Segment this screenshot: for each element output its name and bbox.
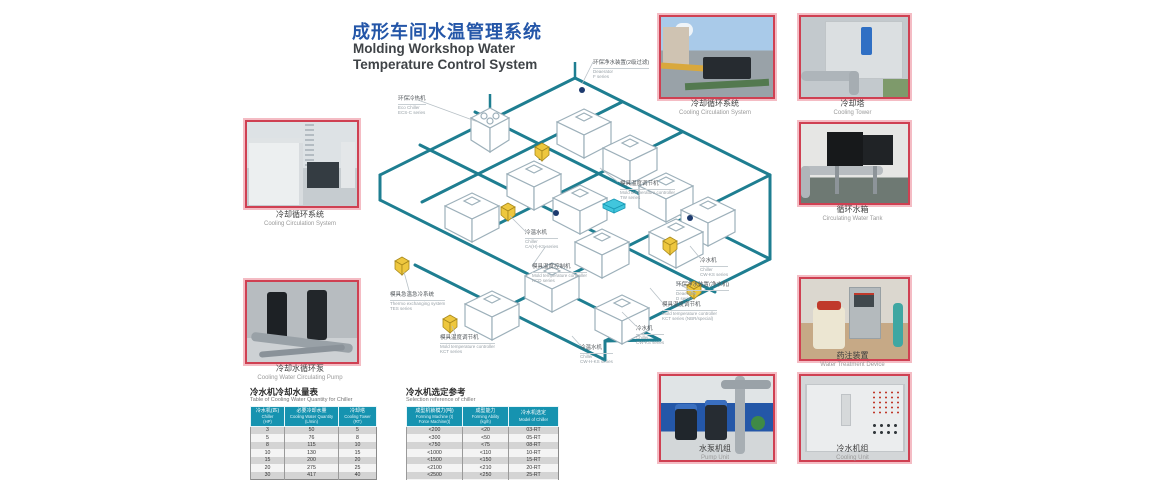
table-row: 2027525 — [251, 464, 377, 472]
table-cell: 10 — [339, 442, 377, 450]
table-cell: 200 — [285, 457, 339, 465]
table-cell: <250 — [463, 472, 509, 480]
table-cell: 25-RT — [509, 472, 559, 480]
table-cell: 05-RT — [509, 434, 559, 442]
table-cell: <75 — [463, 442, 509, 450]
table-cell: 15 — [251, 457, 285, 465]
diagram-label-sr: KCT series (NBR/special) — [662, 316, 717, 322]
table-left-wrap: 冷水机冷却水量表 Table of Cooling Water Quantity… — [250, 387, 376, 480]
caption-water-tank: 循环水箱 Circulating Water Tank — [789, 205, 916, 224]
pump-shape — [307, 290, 327, 340]
pipe-shape — [801, 166, 883, 175]
diagram-label-sr: CW-H-KS series — [580, 359, 613, 365]
table-cell: 275 — [285, 464, 339, 472]
caption-cooling-tower: 冷却塔 Cooling Tower — [789, 99, 916, 118]
caption-en: Pump Unit — [649, 455, 781, 463]
building-shape — [341, 142, 355, 188]
table-cell: 8 — [339, 434, 377, 442]
table-row: 5768 — [251, 434, 377, 442]
pipe-elbow-shape — [801, 166, 810, 198]
caption-en: Cooling Circulation System — [235, 221, 365, 229]
grass-shape — [883, 79, 908, 97]
table-cell: <2100 — [407, 464, 463, 472]
diagram-label: 模具急温急冷系统Thermo exchanging systemTES seri… — [390, 292, 445, 312]
pump-dot-icon — [687, 215, 693, 221]
table-cell: <750 — [407, 442, 463, 450]
machine-icon — [465, 291, 519, 340]
caption-zh: 药注装置 — [789, 351, 916, 362]
cooling-water-quantity-table: 冷水机(匹)Chiller(HP)必要冷却水量Cooling Water Qua… — [250, 406, 377, 480]
diagram-label-zh: 冷温水机 — [580, 345, 613, 354]
table-cell: <20 — [463, 426, 509, 434]
caption-zh: 冷却水循环泵 — [235, 364, 365, 375]
table-left-title-zh: 冷水机冷却水量表 — [250, 387, 376, 397]
table-cell: 3 — [251, 426, 285, 434]
table-row: <200<2003-RT — [407, 426, 559, 434]
table-row: 1013015 — [251, 449, 377, 457]
pump-shape — [675, 404, 697, 440]
diagram-label-sr: F series — [593, 74, 649, 80]
diagram-label-zh: 冷温水机 — [525, 230, 558, 239]
caption-zh: 冷水机组 — [789, 444, 916, 455]
pipe-elbow-shape — [849, 71, 859, 95]
table-cell: <300 — [407, 434, 463, 442]
diagram-label-zh: 环保净水装置(净水机) — [676, 282, 729, 291]
red-lid-shape — [817, 301, 841, 310]
diagram-label: 冷水机ChillerCW-KS series — [700, 258, 728, 278]
table-cell: 20 — [251, 464, 285, 472]
diagram-label-zh: 环保冷热机 — [398, 96, 426, 105]
table-cell: 30 — [251, 472, 285, 480]
eco-chiller-icon — [471, 108, 509, 152]
table-row: 811510 — [251, 442, 377, 450]
photo-water-tank — [799, 122, 910, 205]
diagram-label-sr: CW-KS series — [636, 340, 664, 346]
caption-zh: 冷却循环系统 — [235, 210, 365, 221]
table-cell: 03-RT — [509, 426, 559, 434]
machine-icon — [445, 193, 499, 242]
table-header-cell: 冷水机(匹)Chiller(HP) — [251, 406, 285, 426]
pump-shape — [267, 292, 287, 340]
yellow-controller-icon — [535, 143, 549, 161]
photo-cooling-circulation-left — [245, 120, 359, 208]
tank-shape — [863, 135, 893, 165]
table-cell: <50 — [463, 434, 509, 442]
caption-zh: 水泵机组 — [649, 444, 781, 455]
diagram-label: 冷水机ChillerCW-KS series — [636, 326, 664, 346]
table-cell: 15-RT — [509, 457, 559, 465]
diagram-label-sr: TES series — [390, 306, 445, 312]
pump-shape — [705, 400, 727, 440]
caption-en: Water Treatment Device — [789, 362, 916, 370]
table-header-cell: 冷却塔Cooling Tower(RT) — [339, 406, 377, 426]
table-cell: 115 — [285, 442, 339, 450]
diagram-label-zh: 模具温度调节机 — [440, 335, 495, 344]
table-row: <1000<11010-RT — [407, 449, 559, 457]
table-cell: <150 — [463, 457, 509, 465]
caption-water-treatment: 药注装置 Water Treatment Device — [789, 351, 916, 370]
table-header-cell: 必要冷却水量Cooling Water Quantity(L/min) — [285, 406, 339, 426]
page-canvas: 成形车间水温管理系统 Molding Workshop Water Temper… — [0, 0, 1150, 480]
caption-pump-unit: 水泵机组 Pump Unit — [649, 444, 781, 463]
blue-motor-shape — [861, 27, 872, 55]
photo-water-treatment — [799, 277, 910, 361]
diagram-label-zh: 模具温度调节机 — [662, 302, 717, 311]
yellow-controller-icon — [443, 315, 457, 333]
caption-zh: 循环水箱 — [789, 205, 916, 216]
caption-circulating-pump: 冷却水循环泵 Cooling Water Circulating Pump — [235, 364, 365, 383]
table-cell: 15 — [339, 449, 377, 457]
table-row: 3505 — [251, 426, 377, 434]
table-cell: <1500 — [407, 457, 463, 465]
pump-dot-icon — [579, 87, 585, 93]
table-cell: 5 — [339, 426, 377, 434]
pump-dot-icon — [553, 210, 559, 216]
diagram-label: 冷温水机ChillerCA(H)-KS series — [525, 230, 558, 250]
cooling-tower-shape — [249, 138, 303, 205]
panel-shape — [854, 293, 874, 307]
diagram-label: 环保净水装置(净水机)DeaeratorD series — [676, 282, 729, 302]
leg-shape — [873, 166, 877, 194]
table-header-cell: 成型机锁模力(吨)Forming Machine (t)Force Machin… — [407, 406, 463, 426]
diagram-label: 模具温度调节机Mold temperature controllerKCT se… — [440, 335, 495, 355]
diagram-label-sr: KCD series — [532, 278, 587, 284]
table-cell: 50 — [285, 426, 339, 434]
diagram-label-sr: CW-KS series — [700, 272, 728, 278]
diagram-label: 环保净水装置(2级过滤)DeaeratorF series — [593, 60, 649, 80]
table-header-cell: 冷水机选定Model of Chiller — [509, 406, 559, 426]
diagram-label: 冷温水机ChillerCW-H-KS series — [580, 345, 613, 365]
indicator-lights-shape — [871, 390, 899, 416]
table-cell: <210 — [463, 464, 509, 472]
leg-shape — [835, 166, 839, 194]
mast-shape — [305, 124, 314, 166]
dark-unit-shape — [307, 162, 339, 188]
table-header-cell: 成型能力Forming Ability(kg/h) — [463, 406, 509, 426]
diagram-label: 模具温度调节机Mold temperature controllerTW ser… — [620, 181, 675, 201]
table-cell: <2500 — [407, 472, 463, 480]
table-cell: 76 — [285, 434, 339, 442]
table-row: <2500<25025-RT — [407, 472, 559, 480]
teal-pipe-shape — [893, 303, 903, 347]
dosing-tank-shape — [813, 307, 845, 349]
table-row: 1520020 — [251, 457, 377, 465]
table-cell: 25 — [339, 464, 377, 472]
table-cell: 5 — [251, 434, 285, 442]
table-cell: 08-RT — [509, 442, 559, 450]
table-right-wrap: 冷水机选定参考 Selection reference of chiller 成… — [406, 387, 558, 480]
switches-shape — [871, 422, 899, 436]
table-row: <300<5005-RT — [407, 434, 559, 442]
diagram-label-sr: KCT series — [440, 349, 495, 355]
caption-en: Cooling Water Circulating Pump — [235, 375, 365, 383]
chiller-selection-table: 成型机锁模力(吨)Forming Machine (t)Force Machin… — [406, 406, 559, 480]
table-cell: <1000 — [407, 449, 463, 457]
table-cell: 20-RT — [509, 464, 559, 472]
table-cell: <110 — [463, 449, 509, 457]
table-right-title-zh: 冷水机选定参考 — [406, 387, 558, 397]
table-cell: 8 — [251, 442, 285, 450]
table-row: <750<7508-RT — [407, 442, 559, 450]
diagram-label-zh: 模具急温急冷系统 — [390, 292, 445, 301]
diagram-label-sr: ECS-C series — [398, 110, 426, 116]
diagram-label-sr: CA(H)-KS series — [525, 244, 558, 250]
table-cell: 10 — [251, 449, 285, 457]
table-row: <1500<15015-RT — [407, 457, 559, 465]
yellow-controller-icon — [395, 257, 409, 275]
sight-glass-shape — [841, 394, 851, 426]
yellow-controller-icon — [501, 203, 515, 221]
table-cell: <200 — [407, 426, 463, 434]
caption-cooling-unit: 冷水机组 Cooling Unit — [789, 444, 916, 463]
table-row: 3041740 — [251, 472, 377, 480]
diagram-label-zh: 模具温度调节机 — [620, 181, 675, 190]
photo-circulating-pump — [245, 280, 359, 364]
tank-shape — [827, 132, 863, 166]
table-cell: 40 — [339, 472, 377, 480]
table-left-title-en: Table of Cooling Water Quantity for Chil… — [250, 397, 376, 404]
table-cell: 20 — [339, 457, 377, 465]
caption-en: Cooling Unit — [789, 455, 916, 463]
caption-en: Circulating Water Tank — [789, 216, 916, 224]
table-right-title-en: Selection reference of chiller — [406, 397, 558, 404]
table-cell: 10-RT — [509, 449, 559, 457]
caption-cooling-circulation-left: 冷却循环系统 Cooling Circulation System — [235, 210, 365, 229]
diagram-label-zh: 环保净水装置(2级过滤) — [593, 60, 649, 69]
diagram-label: 模具温度控制机Mold temperature controllerKCD se… — [532, 264, 587, 284]
caption-en: Cooling Tower — [789, 110, 916, 118]
caption-zh: 冷却塔 — [789, 99, 916, 110]
table-cell: 130 — [285, 449, 339, 457]
valve-shape — [751, 416, 765, 430]
table-cell: 417 — [285, 472, 339, 480]
diagram-label-sr: TW series — [620, 195, 675, 201]
photo-cooling-tower — [799, 15, 910, 99]
diagram-label: 环保冷热机Eco ChillerECS-C series — [398, 96, 426, 116]
table-row: <2100<21020-RT — [407, 464, 559, 472]
diagram-label-zh: 模具温度控制机 — [532, 264, 587, 273]
diagram-label: 模具温度调节机Mold temperature controllerKCT se… — [662, 302, 717, 322]
diagram-label-zh: 冷水机 — [700, 258, 728, 267]
diagram-label-zh: 冷水机 — [636, 326, 664, 335]
